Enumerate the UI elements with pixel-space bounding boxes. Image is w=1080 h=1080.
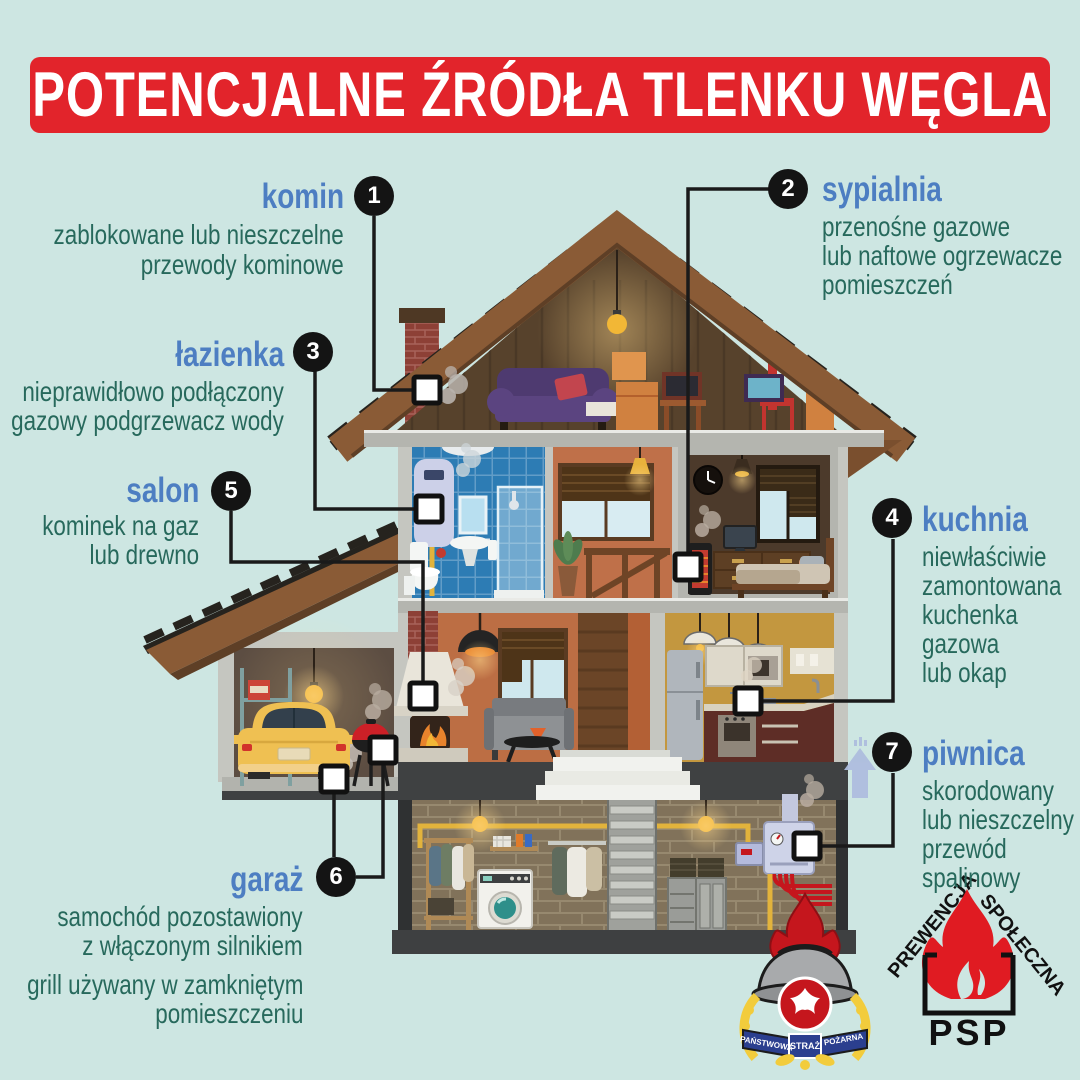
interior-door [578,613,650,762]
ribbon-center-label: STRAŻ [790,1041,820,1051]
label-komin-desc: zablokowane lub nieszczelne przewody kom… [54,220,344,280]
callout-number-2: 2 [768,169,808,209]
living-window [500,630,566,706]
marker-komin [414,377,440,403]
marker-garaz-car [321,766,347,792]
label-garaz-title: garaż [230,860,303,900]
label-lazienka-title: łazienka [175,335,284,375]
hanging-clothes [548,843,606,897]
washing-machine-icon [478,870,532,928]
callout-number-7: 7 [872,732,912,772]
label-salon-desc: kominek na gaz lub drewno [42,511,199,569]
shower-icon [494,487,544,598]
psp-prevention-logo: PREWENCJA SPOŁECZNA PSP [884,869,1070,1053]
marker-sypialnia [675,554,701,580]
marker-lazienka [416,496,442,522]
infographic: POTENCJALNE ŹRÓDŁA TLENKU WĘGLA [0,0,1080,1080]
label-kuchnia-title: kuchnia [922,500,1028,540]
fridge-icon [667,650,703,760]
callout-number-6: 6 [316,857,356,897]
prevention-abbr-label: PSP [928,1012,1009,1053]
clothes-rack [424,838,474,932]
marker-piwnica [794,833,820,859]
callout-number-1: 1 [354,176,394,216]
marker-kuchnia [735,688,761,714]
bedroom-window [758,467,818,541]
marker-salon [410,683,436,709]
label-sypialnia-title: sypialnia [822,170,942,210]
callout-number-3: 3 [293,332,333,372]
label-lazienka-desc: nieprawidłowo podłączony gazowy podgrzew… [11,377,284,435]
label-kuchnia-desc: niewłaściwie zamontowana kuchenka gazowa… [922,542,1061,687]
entrance-steps [536,750,700,800]
label-salon-title: salon [126,471,199,511]
wall-clock-icon [694,466,722,494]
label-garaz-desc-2: grill używany w zamkniętym pomieszczeniu [27,970,303,1028]
callout-number-5: 5 [211,471,251,511]
mirror-icon [460,497,486,533]
marker-garaz-grill [370,737,396,763]
label-piwnica-title: piwnica [922,734,1025,774]
label-sypialnia-desc: przenośne gazowe lub naftowe ogrzewacze … [822,212,1062,299]
label-garaz-desc-1: samochód pozostawiony z włączonym silnik… [58,902,303,960]
callout-number-4: 4 [872,498,912,538]
basement-ladder [608,798,656,932]
label-piwnica-desc: skorodowany lub nieszczelny przewód spal… [922,776,1074,892]
label-komin-title: komin [262,177,344,217]
vent-arrow-icon [844,737,876,798]
landing [550,447,672,598]
